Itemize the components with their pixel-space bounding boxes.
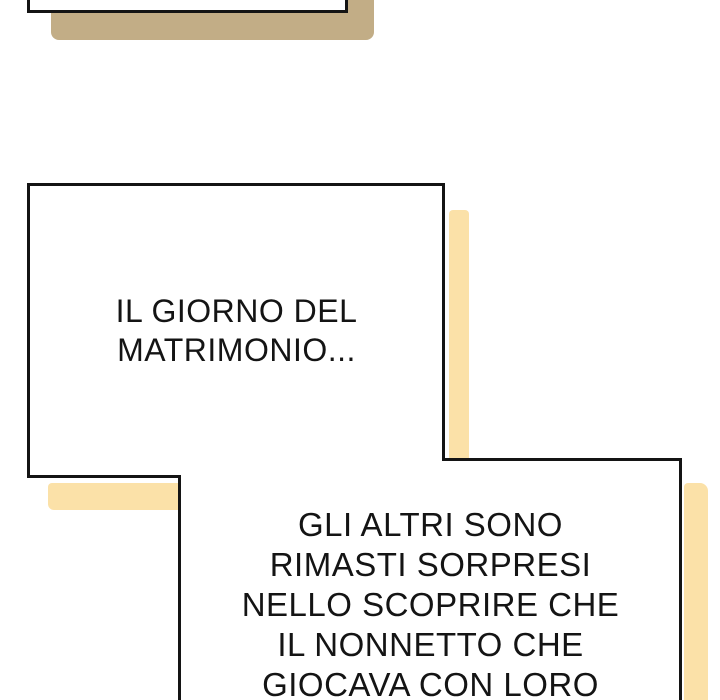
dialogue-line: MATRIMONIO... — [117, 331, 356, 370]
middle-bubble-text: IL GIORNO DEL MATRIMONIO... — [30, 186, 443, 475]
bottom-bubble-text: GLI ALTRI SONO RIMASTI SORPRESI NELLO SC… — [181, 505, 680, 700]
comic-panel: IL GIORNO DEL MATRIMONIO... GLI ALTRI SO… — [0, 0, 720, 700]
dialogue-line: IL GIORNO DEL — [116, 292, 358, 331]
dialogue-line: GIOCAVA CON LORO — [181, 665, 680, 700]
dialogue-line: IL NONNETTO CHE — [181, 625, 680, 665]
dialogue-line: NELLO SCOPRIRE CHE — [181, 585, 680, 625]
dialogue-line: GLI ALTRI SONO — [181, 505, 680, 545]
dialogue-line: RIMASTI SORPRESI — [181, 545, 680, 585]
